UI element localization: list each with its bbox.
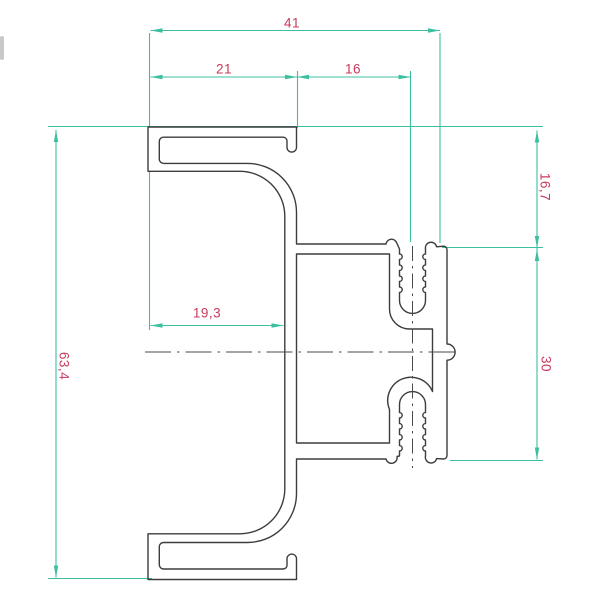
dim-label-total-height: 63,4 (57, 352, 72, 380)
drawing-canvas: 41 21 16 19,3 16,7 30 63,4 (0, 0, 600, 600)
profile-outline (148, 127, 455, 580)
dim-label-top-depth: 16,7 (538, 173, 553, 201)
dim-label-flange-width: 21 (216, 62, 232, 77)
dim-label-boss-offset: 16 (345, 62, 361, 77)
dim-label-boss-span: 30 (539, 356, 554, 372)
dimension-lines (48, 31, 543, 579)
centerlines (145, 246, 458, 468)
drawing-linework (0, 0, 600, 600)
dim-label-opening-depth: 19,3 (193, 306, 221, 321)
dim-label-total-width: 41 (284, 16, 300, 31)
